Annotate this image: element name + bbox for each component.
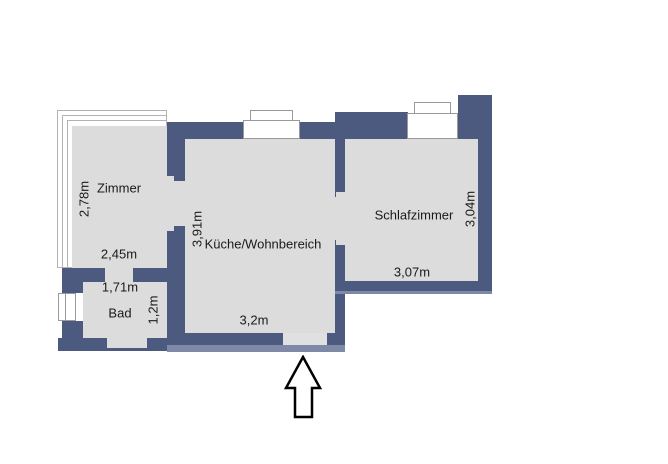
door-bad-bottom bbox=[107, 338, 147, 348]
wall-schlafzimmer-top-left bbox=[335, 112, 408, 139]
floorplan-canvas: Zimmer 2,78m 2,45m 3,91m Küche/Wohnberei… bbox=[0, 0, 668, 464]
kueche-window bbox=[243, 120, 300, 139]
dim-label-bad-width: 1,71m bbox=[102, 281, 138, 294]
dim-label-bad-depth: 1,2m bbox=[147, 296, 160, 325]
dim-label-kueche-depth: 3,91m bbox=[191, 211, 204, 247]
dim-label-zimmer-width: 2,45m bbox=[101, 248, 137, 261]
wall-kueche-bottom-left bbox=[185, 333, 283, 345]
wall-schlafzimmer-bottom bbox=[335, 281, 492, 291]
door-schlafzimmer-jamb-bottom bbox=[336, 240, 345, 245]
wall-kueche-bottom-right bbox=[327, 333, 345, 345]
wall-bad-left-upper bbox=[62, 268, 83, 293]
entrance-arrow-icon bbox=[283, 355, 323, 421]
dim-label-zimmer-depth: 2,78m bbox=[78, 181, 91, 217]
dim-label-schlafzimmer-depth: 3,04m bbox=[464, 191, 477, 227]
door-entrance bbox=[283, 333, 327, 345]
wall-schlafzimmer-right bbox=[478, 139, 492, 291]
wall-kueche-top-left bbox=[167, 122, 245, 139]
room-label-bad: Bad bbox=[108, 307, 131, 320]
bad-window bbox=[58, 293, 76, 321]
door-kueche-schlafzimmer bbox=[335, 197, 345, 240]
room-label-kueche: Küche/Wohnbereich bbox=[205, 238, 322, 251]
wall-schlafzimmer-top-right bbox=[458, 95, 492, 139]
dim-label-schlafzimmer-width: 3,07m bbox=[394, 266, 430, 279]
room-label-schlafzimmer: Schlafzimmer bbox=[375, 209, 454, 222]
bad-window-line bbox=[65, 293, 66, 321]
wall-kueche-bottom-shadow bbox=[167, 345, 345, 352]
door-zimmer-kueche bbox=[167, 181, 185, 226]
dim-label-kueche-width: 3,2m bbox=[240, 314, 269, 327]
room-label-zimmer: Zimmer bbox=[97, 182, 141, 195]
schlafzimmer-window bbox=[407, 113, 458, 139]
wall-kueche-left bbox=[167, 122, 185, 351]
